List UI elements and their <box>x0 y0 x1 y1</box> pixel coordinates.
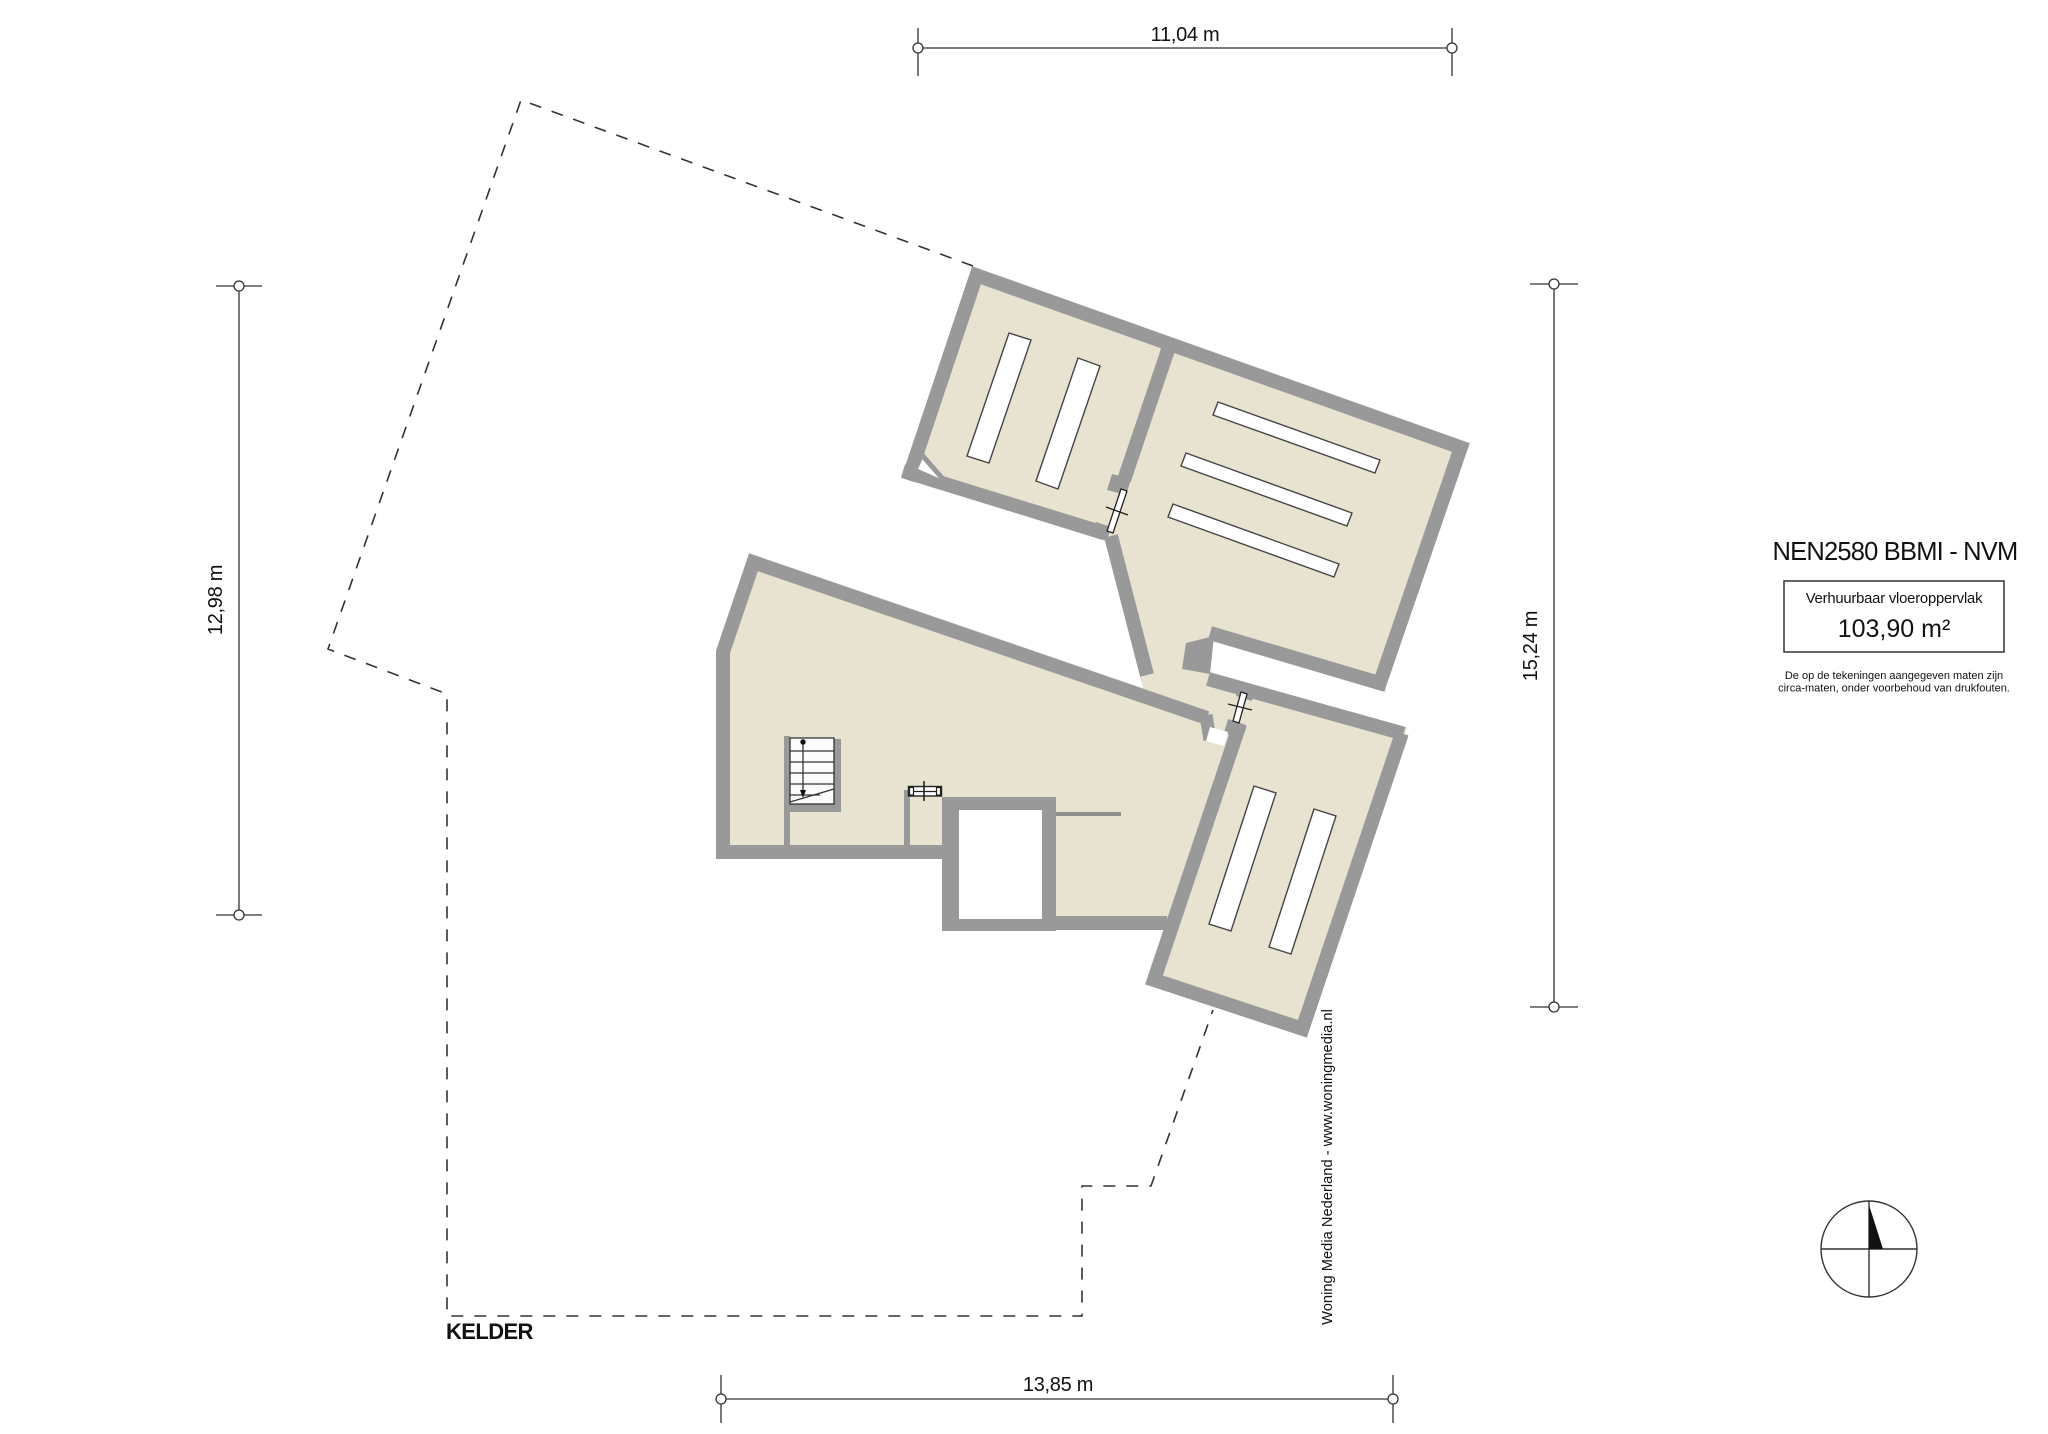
svg-text:circa-maten, onder voorbehoud: circa-maten, onder voorbehoud van drukfo… <box>1778 683 2010 695</box>
svg-text:Woning Media Nederland - www.w: Woning Media Nederland - www.woningmedia… <box>1320 1009 1336 1325</box>
svg-text:103,90 m²: 103,90 m² <box>1838 615 1951 643</box>
svg-text:Verhuurbaar vloeroppervlak: Verhuurbaar vloeroppervlak <box>1806 591 1983 607</box>
svg-text:15,24 m: 15,24 m <box>1520 611 1542 681</box>
svg-text:11,04 m: 11,04 m <box>1151 24 1220 46</box>
svg-text:12,98 m: 12,98 m <box>205 565 227 635</box>
svg-text:De op de tekeningen aangegeven: De op de tekeningen aangegeven maten zij… <box>1785 670 2003 682</box>
svg-text:13,85 m: 13,85 m <box>1023 1374 1093 1396</box>
svg-text:NEN2580 BBMI - NVM: NEN2580 BBMI - NVM <box>1773 538 2018 566</box>
svg-text:KELDER: KELDER <box>446 1319 534 1344</box>
